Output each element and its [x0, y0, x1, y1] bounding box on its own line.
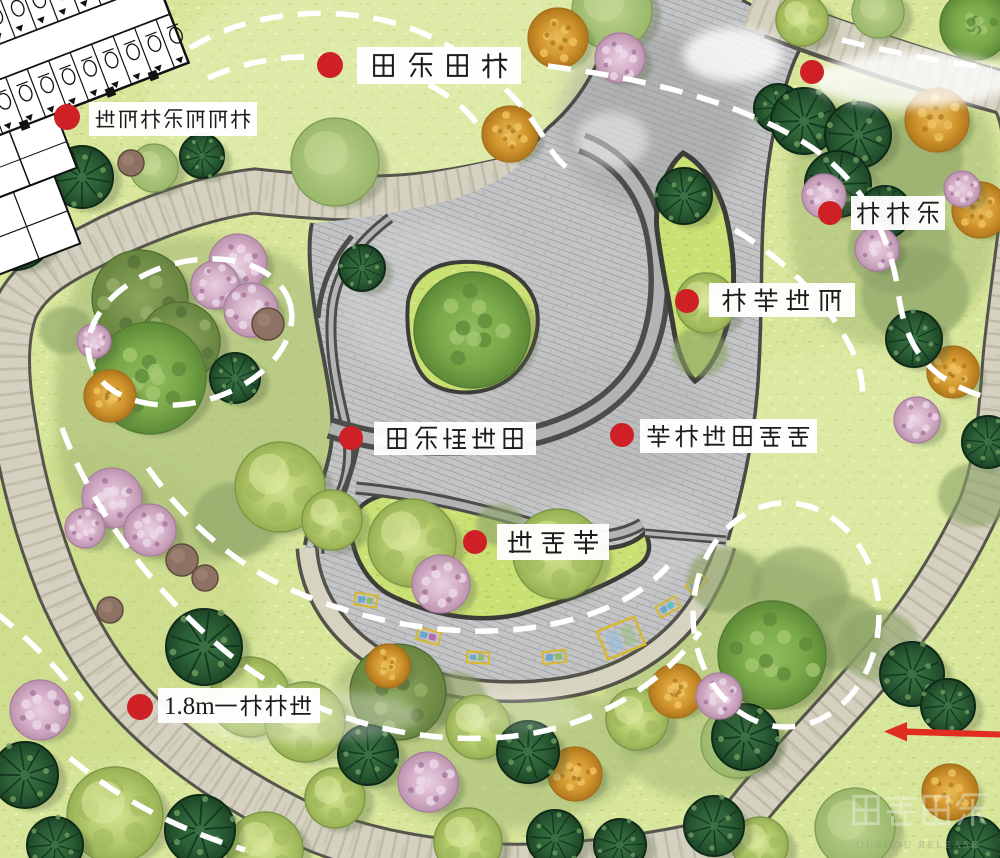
svg-text:1.8m: 1.8m — [164, 693, 215, 720]
svg-text:QUZHOU RELEASE: QUZHOU RELEASE — [856, 840, 980, 851]
